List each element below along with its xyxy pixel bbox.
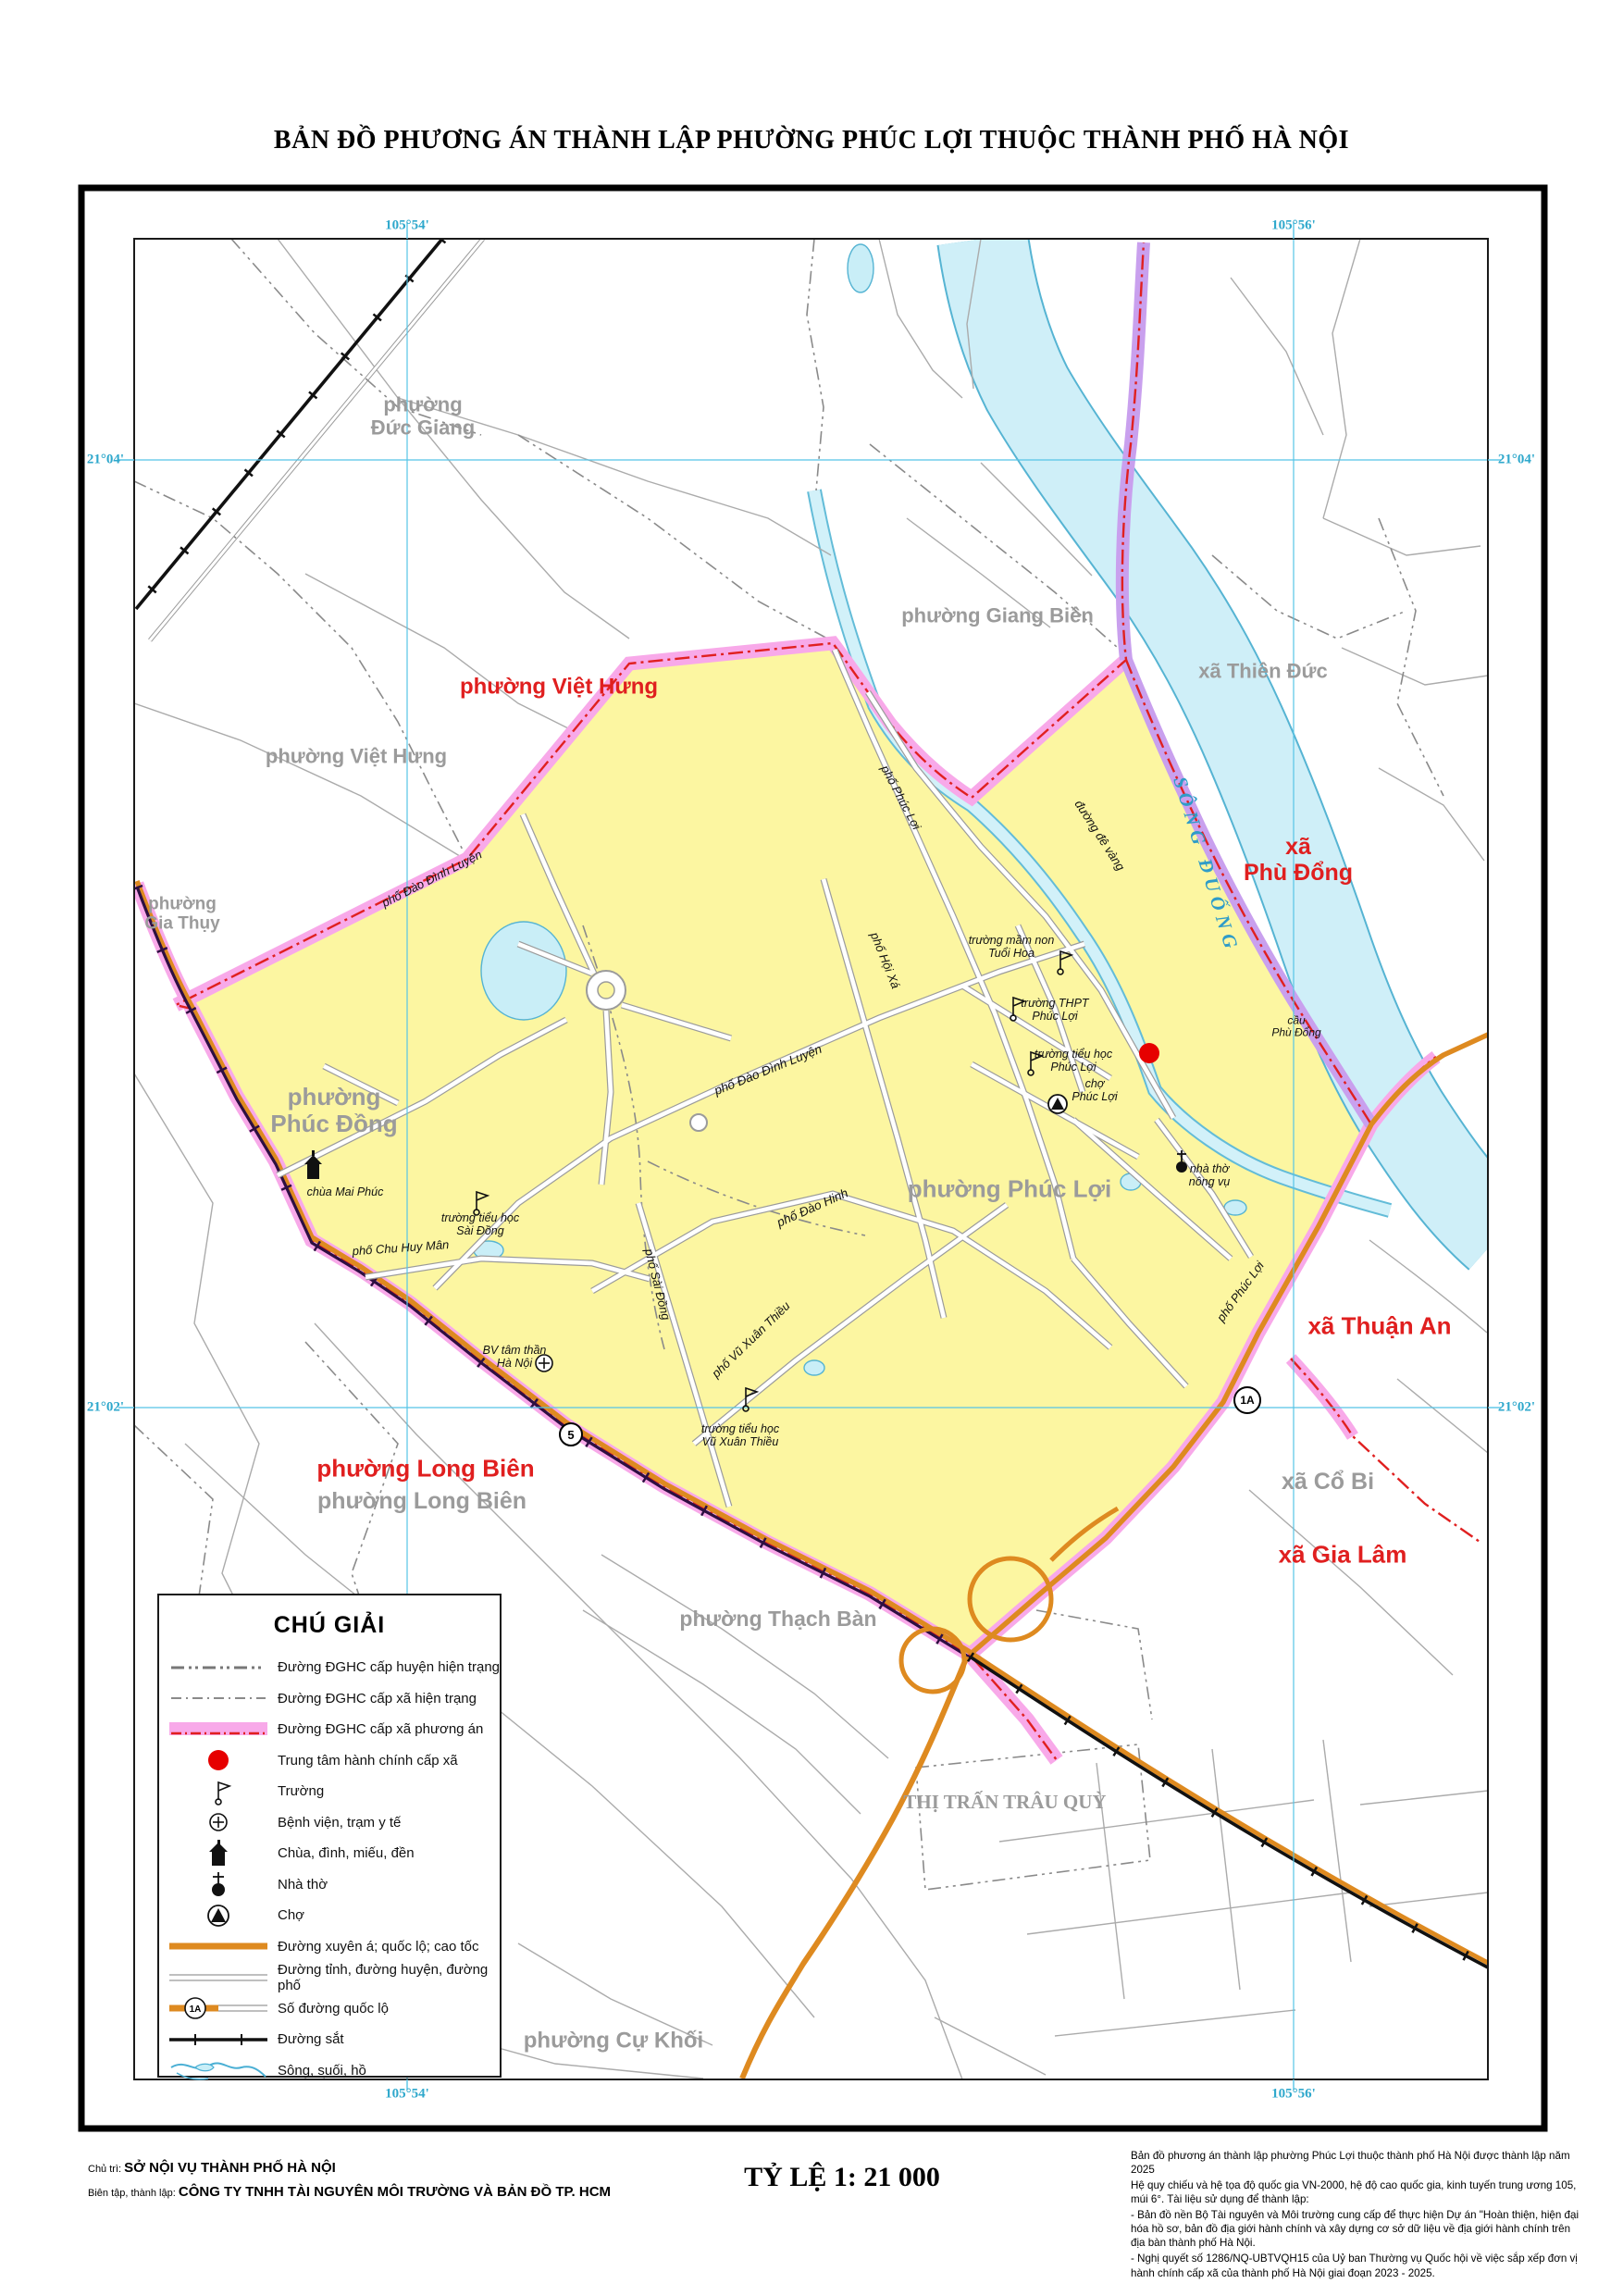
legend-item-label: Đường tỉnh, đường huyện, đường phố — [278, 1962, 500, 1993]
hospital-icon — [536, 1355, 552, 1371]
legend-item: Sông, suối, hồ — [159, 2055, 500, 2087]
market-icon — [159, 1903, 278, 1929]
legend-item: Đường ĐGHC cấp xã phương án — [159, 1714, 500, 1745]
legend-item-label: Sông, suối, hồ — [278, 2063, 366, 2079]
map-sheet: BẢN ĐỒ PHƯƠNG ÁN THÀNH LẬP PHƯỜNG PHÚC L… — [0, 0, 1623, 2296]
railway-icon — [159, 2032, 278, 2047]
legend-item-label: Đường ĐGHC cấp xã hiện trạng — [278, 1691, 477, 1706]
legend-item: Đường ĐGHC cấp xã hiện trạng — [159, 1683, 500, 1715]
legend-item: Đường tỉnh, đường huyện, đường phố — [159, 1962, 500, 1993]
band-pink-icon — [159, 1719, 278, 1741]
legend-item-label: Đường xuyên á; quốc lộ; cao tốc — [278, 1939, 479, 1955]
legend-item: 1ASố đường quốc lộ — [159, 1993, 500, 2025]
legend-item: Trường — [159, 1776, 500, 1807]
legend-item: Chợ — [159, 1900, 500, 1931]
legend-item: Trung tâm hành chính cấp xã — [159, 1745, 500, 1777]
legend-item: Nhà thờ — [159, 1869, 500, 1901]
legend-item-label: Chùa, đình, miếu, đền — [278, 1845, 415, 1861]
legend-item-label: Trung tâm hành chính cấp xã — [278, 1753, 458, 1769]
church-icon — [159, 1870, 278, 1898]
hospital-icon — [159, 1810, 278, 1834]
legend-item: Đường ĐGHC cấp huyện hiện trạng — [159, 1652, 500, 1683]
pagoda-icon — [159, 1840, 278, 1868]
legend-title: CHÚ GIẢI — [159, 1612, 500, 1639]
legend-item-label: Đường ĐGHC cấp xã phương án — [278, 1721, 483, 1737]
line-huyen-icon — [159, 1658, 278, 1677]
legend-item: Bệnh viện, trạm y tế — [159, 1807, 500, 1839]
legend-item-label: Trường — [278, 1783, 324, 1799]
line-xa-icon — [159, 1689, 278, 1707]
legend-item-label: Đường sắt — [278, 2031, 344, 2047]
river-icon — [159, 2054, 278, 2086]
legend-item: Đường xuyên á; quốc lộ; cao tốc — [159, 1931, 500, 1963]
legend-item: Chùa, đình, miếu, đền — [159, 1838, 500, 1869]
route-num-icon: 1A — [159, 1994, 278, 2022]
legend-item-label: Chợ — [278, 1907, 304, 1923]
highway-icon — [159, 1939, 278, 1954]
legend-item: Đường sắt — [159, 2024, 500, 2055]
dot-red-icon — [159, 1748, 278, 1772]
legend-item-label: Nhà thờ — [278, 1877, 328, 1893]
flag-icon — [159, 1778, 278, 1806]
road2-icon — [159, 1970, 278, 1985]
market-icon — [1048, 1095, 1067, 1113]
legend-item-label: Bệnh viện, trạm y tế — [278, 1815, 401, 1831]
legend-box: CHÚ GIẢI Đường ĐGHC cấp huyện hiện trạng… — [157, 1594, 502, 2078]
legend-item-label: Đường ĐGHC cấp huyện hiện trạng — [278, 1659, 500, 1675]
admin-center-dot — [1139, 1043, 1159, 1063]
legend-item-label: Số đường quốc lộ — [278, 2001, 389, 2017]
svg-text:1A: 1A — [190, 2004, 202, 2015]
